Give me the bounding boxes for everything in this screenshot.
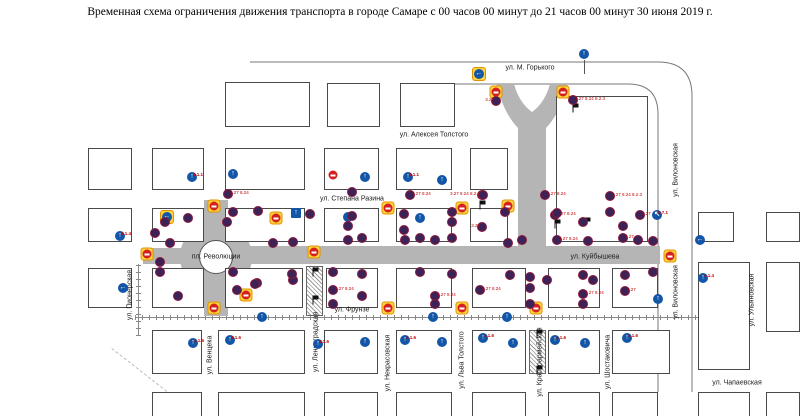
- sign-mandatory-direction: ←: [118, 283, 128, 293]
- city-block: [324, 330, 378, 374]
- sign-label: 3.27 8.24: [412, 191, 431, 196]
- sign-post-flag: [537, 330, 538, 339]
- city-block: [324, 148, 379, 190]
- sign-no-stopping: [579, 271, 587, 279]
- sign-no-entry: [382, 302, 395, 315]
- no-entry-icon: [242, 291, 251, 300]
- no-entry-icon: [210, 202, 219, 211]
- sign-mandatory-direction: ↑4.1.1: [187, 172, 197, 182]
- sign-label: 4.1.6: [484, 333, 494, 338]
- street-label: пл. Революции: [192, 254, 241, 261]
- sign-no-stopping: 3.27 8.24: [541, 191, 549, 199]
- city-block: [225, 82, 310, 127]
- sign-no-stopping: [329, 268, 337, 276]
- sign-no-stopping: [229, 268, 237, 276]
- sign-no-stopping: [553, 209, 561, 217]
- page: Временная схема ограничения движения тра…: [0, 0, 800, 416]
- street-label: ул. М. Горького: [505, 65, 554, 72]
- street-label: ул. Фрунзе: [335, 307, 370, 314]
- no-entry-icon: [272, 214, 281, 223]
- sign-mandatory-direction: ↑4.1.6: [622, 333, 632, 343]
- sign-direction-highlighted: ←: [472, 67, 486, 81]
- sign-no-stopping: [400, 226, 408, 234]
- no-entry-icon: [458, 204, 467, 213]
- sign-label: 3.27: [471, 223, 480, 228]
- sign-post-flag: [313, 296, 314, 305]
- sign-no-stopping: 3.27 8.24: [224, 190, 232, 198]
- sign-no-stopping: 3.27: [636, 211, 644, 219]
- hatched-road-segment: [306, 266, 323, 316]
- city-block: [548, 392, 600, 416]
- sign-post-flag: [537, 366, 538, 375]
- sign-no-stopping: [649, 268, 657, 276]
- sign-no-stopping: [348, 212, 356, 220]
- sign-no-stopping: [358, 292, 366, 300]
- sign-no-stopping: 3.27 8.24: [476, 286, 484, 294]
- sign-label: 3.27: [642, 211, 651, 216]
- sign-no-stopping: [448, 270, 456, 278]
- sign-no-stopping: [589, 276, 597, 284]
- sign-mandatory-direction: ↑: [580, 338, 590, 348]
- sign-no-stopping: [634, 236, 642, 244]
- sign-no-stopping: 3.27 8.24: [553, 236, 561, 244]
- city-block: [88, 208, 132, 242]
- sign-no-stopping: 3.27: [619, 234, 627, 242]
- sign-no-stopping: [579, 300, 587, 308]
- sign-no-entry: [141, 248, 154, 261]
- sign-no-stopping: 3.27 8.24: [406, 191, 414, 199]
- sign-mandatory-direction: ↑4.1.4: [115, 231, 125, 241]
- city-block: [152, 148, 204, 190]
- sign-mandatory-direction: ↑: [257, 312, 267, 322]
- sign-label: 3.27 8.24 8.2.3: [612, 192, 642, 197]
- sign-mandatory-direction: ↑4.1.4: [698, 273, 708, 283]
- city-block: [152, 392, 202, 416]
- pionerskaya-street-line: [136, 264, 141, 336]
- city-block: [396, 268, 452, 308]
- no-entry-icon: [492, 88, 501, 97]
- city-block: [612, 392, 658, 416]
- sign-no-stopping: 3.27 8.24: [579, 290, 587, 298]
- street-label: ул. Красноармейская: [537, 327, 544, 396]
- sign-no-stopping: [501, 208, 509, 216]
- sign-no-stopping: [156, 258, 164, 266]
- no-entry-icon: [310, 248, 319, 257]
- no-entry-icon: [384, 304, 393, 313]
- city-block: [766, 392, 800, 416]
- sign-pole: [584, 60, 585, 74]
- direction-arrow-icon: ←: [474, 69, 484, 79]
- city-block: [612, 330, 670, 374]
- map: ул. М. Горькогоул. Алексея Толстогоул. С…: [0, 0, 800, 416]
- sign-mandatory-direction: ↖5.7.1: [652, 210, 662, 220]
- sign-mandatory-direction: ↑: [428, 312, 438, 322]
- sign-no-stopping: [251, 280, 259, 288]
- sign-no-stopping: [358, 270, 366, 278]
- sign-no-stopping: [161, 218, 169, 226]
- sign-no-stopping: [621, 271, 629, 279]
- sign-label: 5.7.1: [658, 210, 668, 215]
- sign-no-stopping: 3.27: [478, 223, 486, 231]
- sign-no-stopping: [448, 234, 456, 242]
- city-block: [470, 148, 508, 190]
- sign-mandatory-direction: ←: [695, 235, 705, 245]
- sign-no-stopping: [448, 208, 456, 216]
- sign-no-entry: [456, 202, 469, 215]
- sign-mandatory-direction: ↑: [437, 337, 447, 347]
- sign-mandatory-direction: ↑4.1.6: [313, 339, 323, 349]
- city-block: [766, 262, 800, 332]
- sign-no-stopping: [254, 207, 262, 215]
- sign-no-stopping: [526, 273, 534, 281]
- street-label: ул. Вилоновская: [673, 143, 680, 197]
- sign-no-stopping: [526, 284, 534, 292]
- no-entry-icon: [666, 252, 675, 261]
- sign-no-stopping: [229, 208, 237, 216]
- sign-post-flag: [313, 268, 314, 277]
- street-label: ул. Некрасовская: [385, 335, 392, 392]
- sign-no-stopping: [344, 222, 352, 230]
- sign-no-stopping: [606, 208, 614, 216]
- street-label: ул. Венцека: [207, 336, 214, 375]
- sign-no-entry: [382, 202, 395, 215]
- sign-label: 4.1.6: [194, 338, 204, 343]
- sign-no-stopping: [649, 237, 657, 245]
- sign-label: 3.27 8.24: [585, 290, 604, 295]
- sign-no-stopping: [416, 234, 424, 242]
- sign-mandatory-direction: ↑: [360, 337, 370, 347]
- city-block: [548, 268, 600, 308]
- sign-no-stopping: 3.27: [492, 97, 500, 105]
- sign-no-stopping: [479, 191, 487, 199]
- city-block: [324, 392, 378, 416]
- street-label: ул. Льва Толстого: [459, 331, 466, 388]
- sign-no-stopping: [223, 218, 231, 226]
- street-label: ул. Пионерская: [127, 270, 134, 320]
- sign-no-stopping: [288, 270, 296, 278]
- street-label: ул. Чапаевская: [712, 380, 762, 387]
- sign-no-stopping: [431, 236, 439, 244]
- sign-label: 3.27 8.24: [482, 286, 501, 291]
- street-label: ул. Куйбышева: [571, 254, 620, 261]
- city-block: [396, 392, 452, 416]
- sign-mandatory-direction: ↑: [653, 294, 663, 304]
- sign-mandatory-direction: ↑4.1.1: [403, 172, 413, 182]
- sign-label: 3.27: [485, 97, 494, 102]
- sign-label: 4.1.6: [319, 339, 329, 344]
- sign-one-way: ↑: [291, 208, 301, 218]
- city-block: [766, 212, 800, 242]
- sign-no-stopping: [401, 236, 409, 244]
- sign-no-stopping: 3.27 8.24 8.2.3: [606, 192, 614, 200]
- sign-mandatory-direction: ↑: [579, 49, 589, 59]
- street-label: ул. Шостаковича: [605, 335, 612, 389]
- sign-no-stopping: 3.27: [621, 287, 629, 295]
- no-entry-icon: [143, 250, 152, 259]
- sign-no-entry: [308, 246, 321, 259]
- sign-no-stopping: 3.27 8.24: [329, 286, 337, 294]
- sign-label: 4.1.1: [193, 172, 203, 177]
- street-label: ул. Алексея Толстого: [400, 132, 469, 139]
- city-block: [88, 148, 132, 190]
- sign-label: 3.27 8.24: [547, 191, 566, 196]
- sign-no-entry: [240, 289, 253, 302]
- sign-label: 4.1.6: [231, 335, 241, 340]
- sign-no-entry: [456, 302, 469, 315]
- sign-label: 4.1.6: [628, 333, 638, 338]
- sign-no-stopping: [543, 276, 551, 284]
- no-entry-icon: [210, 304, 219, 313]
- sign-post-flag: [480, 201, 481, 210]
- sign-mandatory-direction: ↑4.1.6: [478, 333, 488, 343]
- city-block: [556, 96, 648, 242]
- sign-no-stopping: [526, 300, 534, 308]
- sign-label: 3.27 8.24: [437, 292, 456, 297]
- sign-no-stopping: [269, 239, 277, 247]
- sign-label: 3.27 8.24: [559, 236, 578, 241]
- sign-label: 4.1.6: [556, 335, 566, 340]
- sign-no-stopping: 3.27 8.24: [431, 292, 439, 300]
- sign-mandatory-direction: ↑4.1.6: [400, 335, 410, 345]
- sign-mandatory-direction: ↑4.1.6: [550, 335, 560, 345]
- sign-no-stopping: [579, 218, 587, 226]
- sign-no-stopping: [518, 236, 526, 244]
- sign-label: 3.27 8.24 8.2.3: [575, 96, 605, 101]
- city-block: [400, 83, 455, 127]
- sign-no-stopping: [416, 268, 424, 276]
- sign-no-stopping: [306, 210, 314, 218]
- sign-no-stopping: [348, 188, 356, 196]
- city-block: [327, 83, 380, 127]
- sign-mandatory-direction: ↑4.1.6: [188, 338, 198, 348]
- sign-no-stopping: [166, 239, 174, 247]
- sign-no-stopping: [329, 300, 337, 308]
- sign-no-entry: [270, 212, 283, 225]
- sign-no-stopping: [506, 271, 514, 279]
- sign-mandatory-direction: ↑: [502, 312, 512, 322]
- street-label: ул. Вилоновская: [673, 265, 680, 319]
- street-label: ул. Степана Разина: [320, 196, 384, 203]
- city-block: [225, 148, 305, 190]
- sign-mandatory-direction: ↑: [415, 213, 425, 223]
- sign-no-stopping: [584, 237, 592, 245]
- sign-no-stopping: [344, 236, 352, 244]
- sign-label: 3.27: [625, 234, 634, 239]
- sign-label: 3.27: [627, 287, 636, 292]
- sign-no-stopping: [448, 218, 456, 226]
- sign-no-entry: [557, 86, 570, 99]
- sign-mandatory-direction: ↑: [437, 175, 447, 185]
- sign-mandatory-direction: ↑: [228, 169, 238, 179]
- sign-mandatory-direction: ↑: [360, 172, 370, 182]
- sign-no-stopping: [174, 292, 182, 300]
- city-block: [698, 392, 750, 416]
- sign-label: 4.1.4: [704, 273, 714, 278]
- sign-no-stopping: [431, 300, 439, 308]
- city-block: [472, 392, 526, 416]
- sign-no-stopping: [151, 229, 159, 237]
- sign-no-entry: [329, 171, 338, 180]
- sign-no-stopping: [400, 210, 408, 218]
- sign-label: 4.1.1: [409, 172, 419, 177]
- sign-no-stopping: [289, 238, 297, 246]
- sign-label: 4.1.4: [121, 231, 131, 236]
- no-entry-icon: [458, 304, 467, 313]
- sign-no-stopping: [504, 239, 512, 247]
- sign-mandatory-direction: ↑: [508, 338, 518, 348]
- sign-no-entry: [664, 250, 677, 263]
- city-block: [152, 330, 202, 374]
- sign-label: 4.1.6: [406, 335, 416, 340]
- sign-post-flag: [555, 220, 556, 229]
- sign-no-entry: [208, 302, 221, 315]
- sign-post-flag: [573, 104, 574, 113]
- sign-no-stopping: [358, 234, 366, 242]
- sign-mandatory-direction: ↑4.1.6: [225, 335, 235, 345]
- sign-label: 3.27 8.24: [335, 286, 354, 291]
- sign-no-stopping: [156, 268, 164, 276]
- sign-no-stopping: [619, 222, 627, 230]
- street-label: ул. Ульяновская: [749, 274, 756, 327]
- no-entry-icon: [384, 204, 393, 213]
- city-block: [218, 392, 305, 416]
- sign-no-stopping: 3.27 8.24 8.2.3: [569, 96, 577, 104]
- sign-label: 3.27 8.24: [230, 190, 249, 195]
- sign-no-entry: [208, 200, 221, 213]
- sign-label: 3.27 8.24 8.2.3: [450, 191, 480, 196]
- no-entry-icon: [559, 88, 568, 97]
- sign-no-stopping: [233, 286, 241, 294]
- sign-no-stopping: [184, 214, 192, 222]
